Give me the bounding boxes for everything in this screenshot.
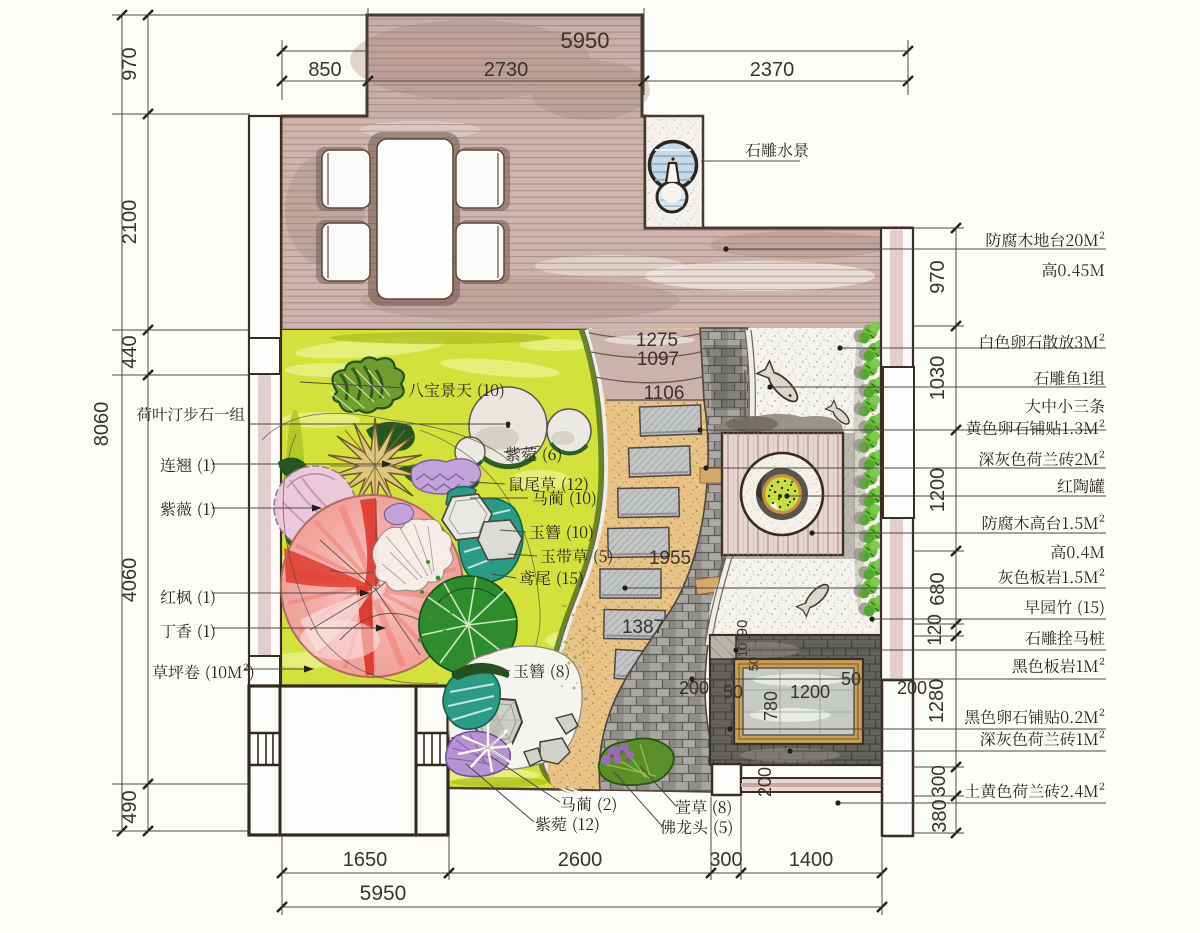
svg-text:1200: 1200 [927,468,949,513]
svg-text:1387: 1387 [622,617,664,638]
svg-text:50: 50 [746,657,761,671]
svg-text:1955: 1955 [649,548,691,569]
svg-text:1400: 1400 [789,849,834,871]
svg-text:2600: 2600 [558,849,603,871]
svg-text:200: 200 [755,767,775,797]
svg-text:1097: 1097 [637,349,679,370]
svg-text:1200: 1200 [790,682,830,702]
svg-text:970: 970 [927,260,949,293]
svg-text:440: 440 [119,335,141,368]
svg-text:200: 200 [897,678,927,698]
svg-text:490: 490 [119,790,141,823]
svg-text:50: 50 [723,682,743,702]
svg-text:300: 300 [709,849,742,871]
svg-text:8060: 8060 [91,402,113,447]
svg-text:850: 850 [308,59,341,81]
svg-text:2370: 2370 [750,59,795,81]
svg-text:5950: 5950 [561,28,610,53]
svg-text:2100: 2100 [119,200,141,245]
svg-text:4060: 4060 [119,558,141,603]
svg-text:1275: 1275 [636,330,678,351]
svg-text:1280: 1280 [926,679,948,724]
svg-text:300: 300 [929,765,950,797]
svg-text:200: 200 [679,678,709,698]
svg-text:1650: 1650 [343,849,388,871]
svg-text:680: 680 [927,572,949,605]
svg-text:380: 380 [929,799,951,832]
svg-text:1030: 1030 [927,356,949,401]
svg-text:780: 780 [761,691,781,721]
svg-text:2730: 2730 [484,59,529,81]
svg-text:1106: 1106 [644,383,685,404]
svg-text:90: 90 [734,620,751,637]
svg-text:970: 970 [119,47,141,80]
svg-text:5950: 5950 [360,882,407,905]
